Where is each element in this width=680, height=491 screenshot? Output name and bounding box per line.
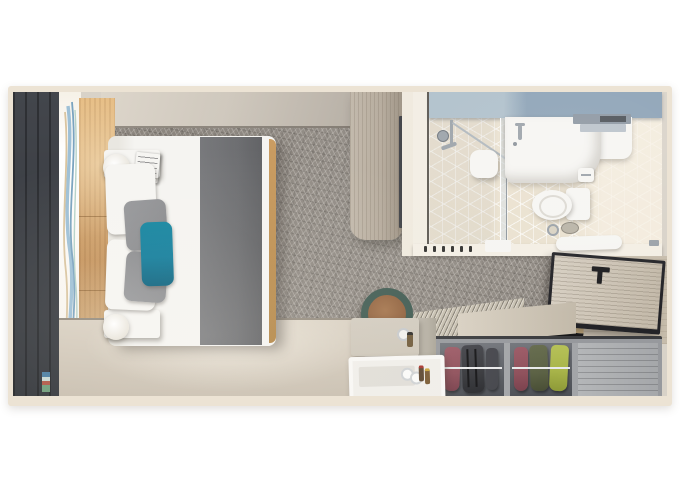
stateroom-floorplan-render — [0, 0, 680, 491]
ambient-light-overlay — [13, 92, 667, 396]
room-outline — [8, 86, 672, 406]
room-interior — [13, 92, 667, 396]
